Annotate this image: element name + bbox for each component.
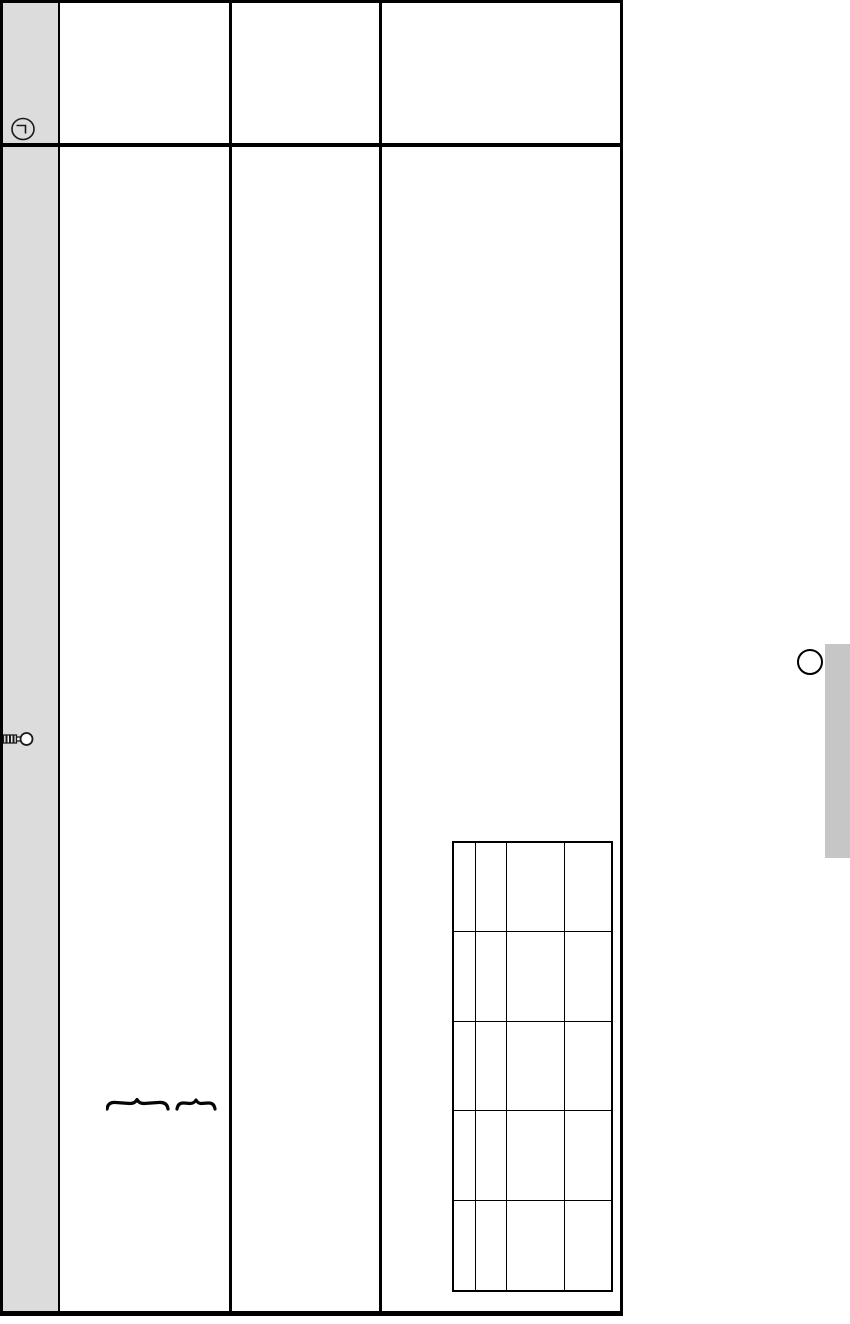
- inner-table-cell: [454, 1022, 476, 1111]
- inner-table-cell: [454, 843, 476, 932]
- body-cell-1: [60, 147, 232, 1311]
- header-margin-cell: [3, 3, 60, 143]
- over-brace-1: [107, 1100, 168, 1110]
- header-cell-1: [60, 3, 232, 143]
- inner-table-cell: [476, 1111, 507, 1200]
- header-cell-3: [382, 3, 620, 143]
- inner-table: [452, 841, 613, 1292]
- form-header-row: [3, 3, 620, 147]
- body-margin-cell: [3, 147, 60, 1311]
- inner-table-cell: [507, 1022, 565, 1111]
- side-tab: [825, 644, 850, 858]
- header-cell-2: [232, 3, 382, 143]
- inner-table-cell: [565, 1201, 611, 1290]
- inner-table-cell: [476, 1201, 507, 1290]
- circle-marker: [797, 649, 823, 675]
- inner-table-cell: [565, 1022, 611, 1111]
- inner-table-cell: [565, 843, 611, 932]
- inner-table-cell: [454, 1201, 476, 1290]
- brace-annotations: [106, 1092, 220, 1118]
- inner-table-cell: [476, 843, 507, 932]
- inner-table-cell: [565, 932, 611, 1021]
- over-brace-2: [177, 1100, 215, 1109]
- inner-table-cell: [565, 1111, 611, 1200]
- inner-table-cell: [476, 1022, 507, 1111]
- inner-table-cell: [454, 932, 476, 1021]
- inner-table-cell: [507, 1111, 565, 1200]
- inner-table-cell: [507, 932, 565, 1021]
- inner-table-cell: [507, 1201, 565, 1290]
- clock-icon: [10, 116, 37, 143]
- inner-table-cell: [507, 843, 565, 932]
- inner-table-cell: [454, 1111, 476, 1200]
- inner-table-cell: [476, 932, 507, 1021]
- scanned-form-page: [0, 0, 850, 1324]
- key-icon: [3, 728, 35, 750]
- body-cell-2: [232, 147, 382, 1311]
